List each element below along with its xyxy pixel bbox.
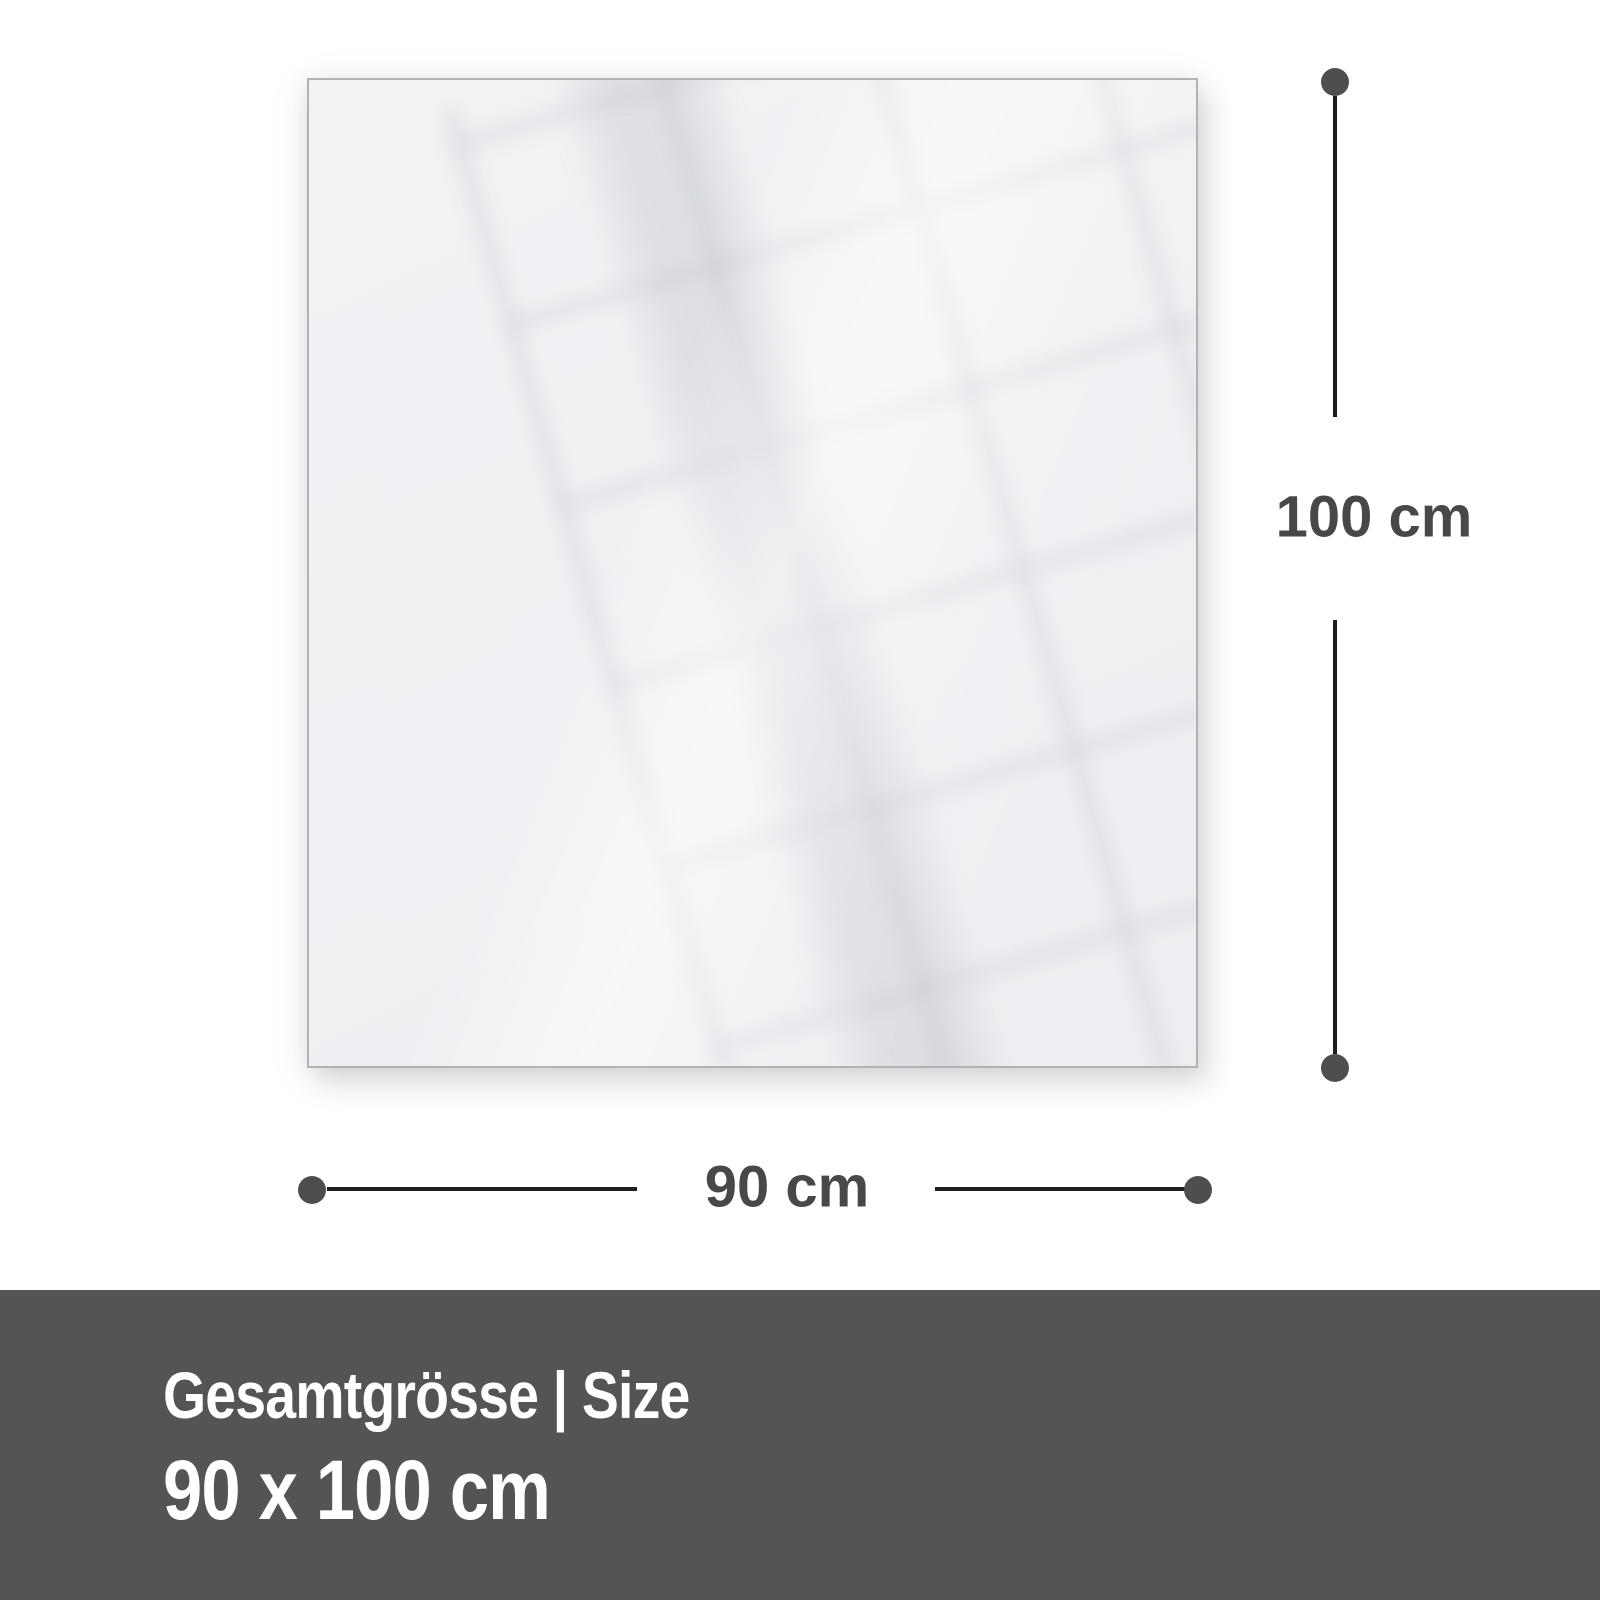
dimension-endpoint-dot [1321, 68, 1349, 96]
glass-panel [307, 78, 1198, 1068]
dimension-endpoint-dot [298, 1176, 326, 1204]
dimension-line-segment [327, 1187, 637, 1191]
glass-sheen [309, 80, 1196, 1066]
dimension-line-segment [935, 1187, 1198, 1191]
height-dimension-label: 100 cm [1276, 484, 1473, 551]
footer-title: Gesamtgrösse | Size [163, 1362, 689, 1428]
footer-size-value: 90 x 100 cm [163, 1448, 550, 1532]
dimension-endpoint-dot [1321, 1054, 1349, 1082]
dimension-line-segment [1333, 620, 1337, 1054]
width-dimension-label: 90 cm [705, 1154, 869, 1221]
product-size-diagram: 100 cm 90 cm Gesamtgrösse | Size 90 x 10… [0, 0, 1600, 1600]
dimension-endpoint-dot [1184, 1176, 1212, 1204]
dimension-line-segment [1333, 96, 1337, 417]
